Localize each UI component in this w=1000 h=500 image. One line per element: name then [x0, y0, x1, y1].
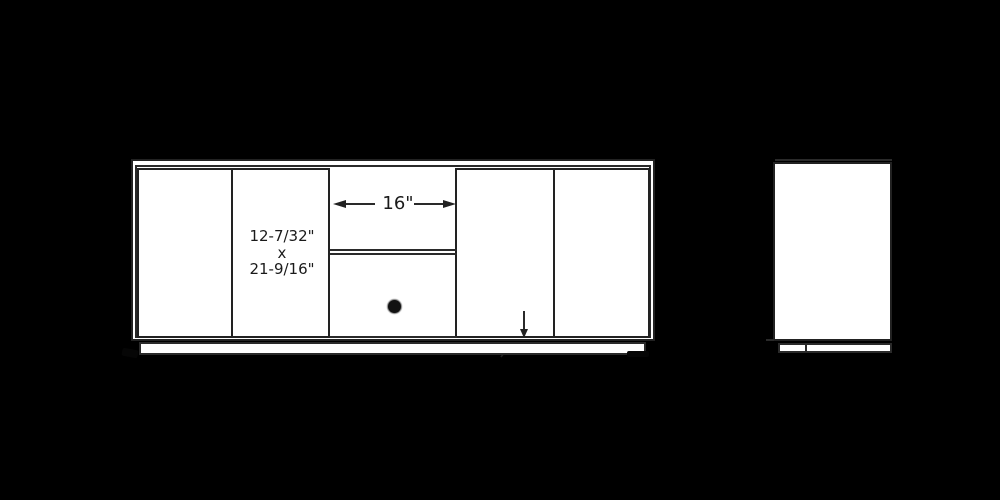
dim-arrowhead-right-icon [443, 200, 456, 208]
drawer-knob [388, 300, 401, 313]
annotation-arrowhead-down-icon [520, 329, 528, 338]
door-size-line-1: 12-7/32" [233, 229, 331, 245]
right-door-1 [455, 168, 555, 338]
side-base-recess-line [805, 343, 807, 353]
drawer-bottom-line [330, 336, 457, 338]
door-size-line-3: 21-9/16" [233, 262, 331, 278]
dim-line-right [414, 203, 443, 205]
center-shelf-bottom-line [330, 253, 457, 255]
left-door-1 [137, 168, 233, 338]
center-shelf-top-line [330, 249, 457, 251]
front-base-plinth [139, 342, 646, 355]
front-inner-top-line [135, 165, 651, 167]
side-base-plinth [778, 343, 892, 353]
annotation-arrow-stem [523, 311, 525, 330]
base-shadow-left [121, 348, 138, 359]
base-shadow-right [627, 351, 649, 357]
drawing-canvas: 16" 12-7/32" x 21-9/16" [0, 0, 1000, 500]
side-top-line [775, 159, 892, 161]
dim-line-left [346, 203, 375, 205]
side-bottom-left-tick [766, 339, 774, 341]
dim-arrowhead-left-icon [333, 200, 346, 208]
side-carcass [773, 162, 892, 341]
right-door-2 [553, 168, 650, 338]
